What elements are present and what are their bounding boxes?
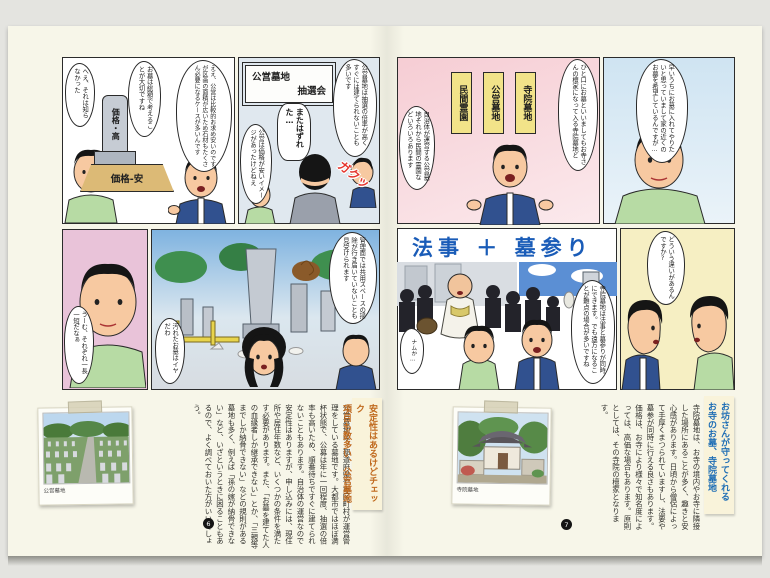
photo-temple-cemetery: 寺院墓地 [451, 406, 551, 505]
tape-left [68, 400, 102, 413]
salesman-presenting-figure [462, 133, 558, 229]
lottery-sign: 公営墓地 抽選会 [245, 65, 333, 103]
bubble-react: へえ、それは知らなかった [65, 63, 95, 127]
photo-public-cemetery: 公営墓地 [37, 406, 133, 505]
sign-temple-cemetery: 寺院墓地 [515, 72, 536, 134]
tombstone-price-high: 価格・高 [102, 95, 128, 153]
article-public-heading: 安定性はあるけどチェック 項目も数多い、公営墓地 [352, 398, 382, 510]
sign-private-cemetery: 民間霊園 [451, 72, 472, 134]
bubble-wish: 早いうちにお墓に入れてやりたいと思っていまして家の近くのお墓を希望しているんです… [636, 59, 688, 163]
page-number-left: 6 [203, 518, 214, 529]
bubble-ponder: うーむ、それぞれ一長一短だなぁ [64, 306, 94, 384]
bubble-lost: またはずれた… [277, 103, 311, 161]
article-public-body: 公営墓地は、都道府県や市区町村が運営管理をしている墓地です。大都市ではほぼ満杯状… [142, 404, 352, 551]
tombstone-price-low: 価格-安 [80, 164, 174, 192]
tape-right [484, 400, 518, 413]
bubble-monk: ナムか… [400, 328, 424, 374]
public-cemetery-image [42, 411, 130, 484]
article-temple-body: 寺院墓地は、お寺の境内やお寺に隣接した場所にあることが多く、趣きと安心感がありま… [556, 404, 702, 536]
sign-public-cemetery: 公営墓地 [483, 72, 504, 134]
bubble-temple-intro: ひと口にお墓といいましてもお寺さんの檀家になって入る寺院墓地と [558, 59, 598, 171]
bubble-lottery-rate: 公営墓地は抽選の倍率が高くすぐには建てられないことも多いです [333, 59, 377, 157]
bubble-public-private: 自治体が運営する公営墓地それから民間の霊園などいろいろあります [399, 106, 435, 190]
bubble-advice: お墓は総額で考えることが大切ですね [128, 61, 161, 137]
bubble-dirty: 汚れたお墓はイヤだわ [155, 318, 185, 384]
temple-cemetery-image [457, 411, 549, 484]
bubble-cheap-image: 公営は価格が安いイメージがあったけどねえ [240, 124, 272, 204]
article-temple-heading: お坊さんが守ってくれる お寺のお墓、寺院墓地 [704, 396, 734, 514]
tombstone-label: 価格・高 [110, 108, 120, 140]
photo-caption-public: 公営墓地 [43, 485, 128, 494]
page-edge-shadow [8, 556, 762, 566]
houji-banner: 法事 ＋ 墓参り [412, 232, 593, 262]
bubble-houji-explain: 寺院墓地は法事と墓参りが同時にできます。でも遠方になることが難点の場合が多いです… [571, 280, 615, 384]
bubble-explain-price: ええ、公営は比較的お求め安いのですが区画の面積が広いため石材もたくさん必要になる… [176, 60, 232, 172]
photo-caption-temple: 寺院墓地 [456, 485, 545, 494]
bubble-question: どういう違いがあるんですか? [647, 231, 685, 305]
bubble-management: 管理面では共用スペースの掃除が行き届いていないことも見受けられます [329, 232, 377, 324]
page-number-right: 7 [561, 519, 572, 530]
tombstone-pedestal [94, 151, 136, 166]
